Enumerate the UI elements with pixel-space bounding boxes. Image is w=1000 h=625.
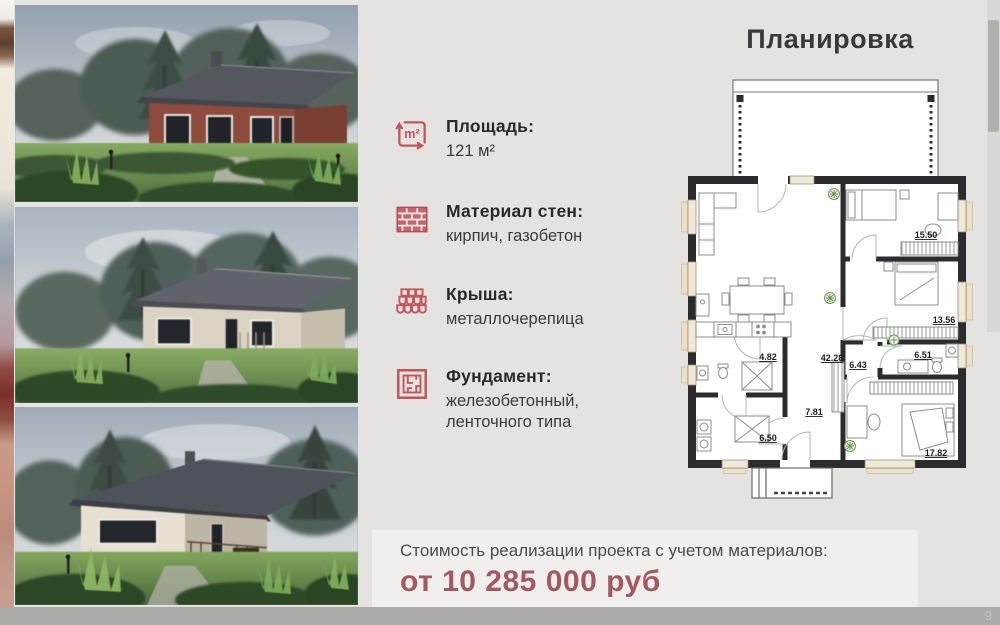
room-area-master: 17.82 (925, 448, 948, 458)
price-label: Стоимость реализации проекта с учетом ма… (400, 541, 918, 561)
spec-foundation-label: Фундамент: (446, 366, 579, 387)
room-area-corridor: 6.43 (849, 360, 867, 370)
room-area-utility: 6.50 (759, 433, 777, 443)
price-banner: Стоимость реализации проекта с учетом ма… (372, 530, 918, 608)
spec-roof-label: Крыша: (446, 284, 584, 305)
spec-walls-value: кирпич, газобетон (446, 226, 583, 247)
footer-bar: 9 (0, 607, 1000, 625)
room-area-living: 42.28 (821, 353, 844, 363)
floor-plan: 15.50 13.56 6.43 6.51 4.82 42.28 6.50 7.… (680, 72, 980, 542)
slide: m² Площадь: 121 м² Материал стен: кирпич… (0, 0, 1000, 625)
spec-roof-value: металлочерепица (446, 309, 584, 330)
house-photo-beige (15, 207, 358, 403)
house-render-2 (15, 207, 358, 403)
room-area-bathroom-right: 6.51 (914, 350, 932, 360)
spec-area-label: Площадь: (446, 116, 534, 137)
house-render-3 (15, 407, 358, 605)
house-render-1 (15, 5, 358, 202)
foundation-icon (393, 365, 431, 403)
floor-plan-drawing: 15.50 13.56 6.43 6.51 4.82 42.28 6.50 7.… (680, 72, 980, 542)
page-number: 9 (985, 608, 992, 623)
room-area-bathroom-left: 4.82 (759, 352, 777, 362)
room-area-bedroom-mid: 13.56 (933, 315, 956, 325)
bricks-icon (393, 200, 431, 238)
plan-title: Планировка (690, 24, 970, 55)
scrollbar-thumb[interactable] (988, 20, 999, 132)
area-icon: m² (393, 115, 431, 153)
spec-roof: Крыша: металлочерепица (393, 283, 658, 330)
spec-walls-label: Материал стен: (446, 201, 583, 222)
spec-area-value: 121 м² (446, 141, 534, 162)
roof-icon (393, 283, 431, 321)
spec-area: m² Площадь: 121 м² (393, 115, 658, 162)
spec-walls: Материал стен: кирпич, газобетон (393, 200, 658, 247)
room-area-bedroom-top: 15.50 (915, 230, 938, 240)
house-photo-terrace (15, 407, 358, 605)
adjacent-slide-strip (0, 0, 14, 625)
spec-foundation: Фундамент: железобетонный, ленточного ти… (393, 365, 658, 434)
svg-text:m²: m² (404, 127, 419, 141)
house-photo-brick (15, 5, 358, 202)
spec-foundation-value: железобетонный, ленточного типа (446, 391, 579, 434)
room-area-hallway: 7.81 (805, 407, 823, 417)
price-value: от 10 285 000 руб (400, 565, 918, 599)
